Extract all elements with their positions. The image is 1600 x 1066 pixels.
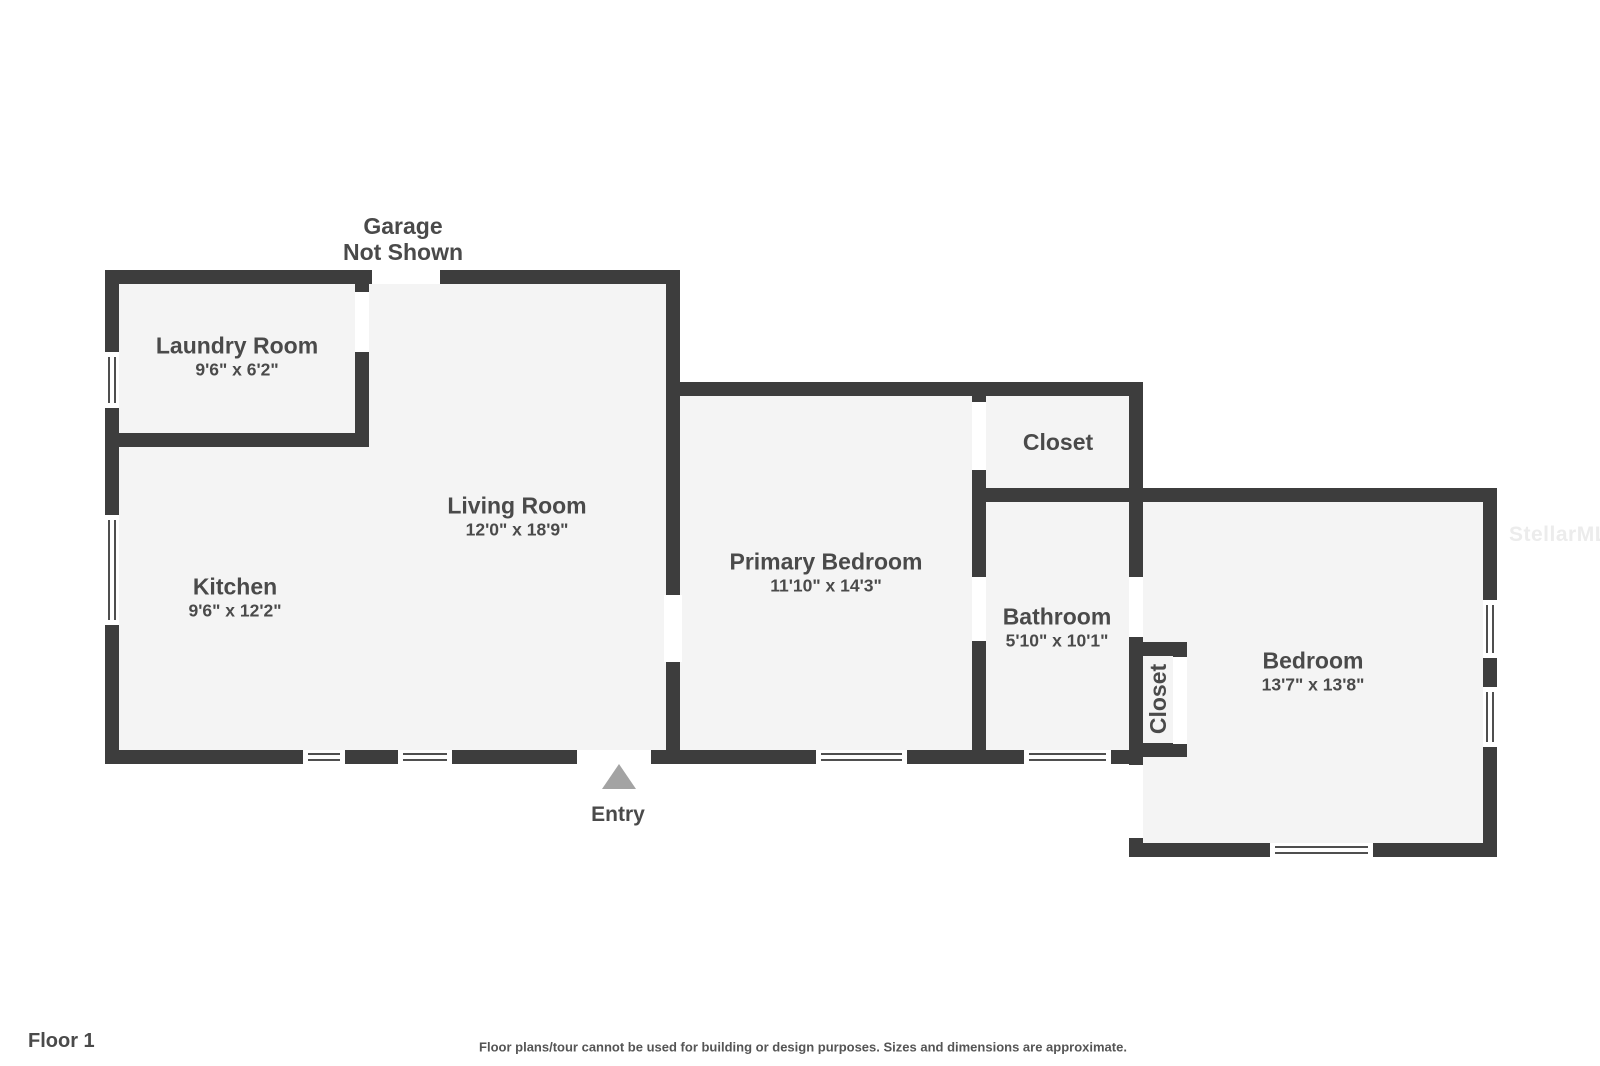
garage-note-line2: Not Shown — [343, 239, 463, 265]
floor-plan-page: Laundry Room 9'6" x 6'2" Kitchen 9'6" x … — [0, 0, 1600, 1066]
window-laundry-left — [105, 352, 119, 408]
room-dims: 9'6" x 6'2" — [156, 359, 318, 382]
room-dims: 9'6" x 12'2" — [188, 600, 281, 623]
room-dims: 13'7" x 13'8" — [1262, 674, 1365, 697]
room-label-primary-bedroom: Primary Bedroom 11'10" x 14'3" — [729, 549, 922, 598]
room-name: Laundry Room — [156, 333, 318, 359]
window-primary-bottom — [816, 750, 907, 764]
disclaimer-text: Floor plans/tour cannot be used for buil… — [479, 1040, 1127, 1055]
room-label-closet: Closet — [1023, 429, 1093, 455]
window-bedroom-bottom — [1270, 843, 1373, 857]
entry-label: Entry — [591, 803, 645, 827]
room-name: Closet — [1145, 664, 1171, 734]
window-bedroom-right-1 — [1483, 600, 1497, 658]
wall-closet-bottom — [972, 488, 1143, 502]
door-opening-bathroom-right — [1129, 577, 1143, 637]
room-label-laundry-room: Laundry Room 9'6" x 6'2" — [156, 333, 318, 382]
watermark-stellar-mls: StellarMLS — [1509, 523, 1600, 547]
wall-primary-top — [666, 382, 1143, 396]
room-dims: 5'10" x 10'1" — [1003, 630, 1112, 653]
room-name: Living Room — [447, 493, 586, 519]
room-name: Bathroom — [1003, 604, 1112, 630]
room-label-living-room: Living Room 12'0" x 18'9" — [447, 493, 586, 542]
wall-living-room-right — [666, 270, 680, 764]
wall-laundry-bottom — [105, 433, 369, 447]
door-opening-bedroom-side — [1129, 765, 1143, 838]
room-name: Closet — [1023, 429, 1093, 455]
door-opening-bedroom-closet — [1173, 657, 1187, 744]
garage-note-line1: Garage — [343, 213, 463, 239]
wall-bedroom-right — [1483, 488, 1497, 857]
door-opening-bathroom-left — [972, 577, 986, 641]
floor-label: Floor 1 — [28, 1030, 95, 1053]
door-opening-laundry — [355, 292, 369, 352]
window-bathroom-bottom — [1024, 750, 1111, 764]
door-opening-primary-bedroom — [664, 595, 682, 662]
window-kitchen-bottom-2 — [398, 750, 452, 764]
room-name: Kitchen — [188, 574, 281, 600]
entry-arrow-icon — [602, 764, 636, 789]
wall-bedroom-top — [1129, 488, 1497, 502]
wall-bedroom-closet-bottom — [1129, 743, 1187, 757]
room-label-kitchen: Kitchen 9'6" x 12'2" — [188, 574, 281, 623]
room-name: Primary Bedroom — [729, 549, 922, 575]
window-bedroom-right-2 — [1483, 687, 1497, 747]
window-kitchen-bottom-1 — [303, 750, 345, 764]
door-opening-entry — [577, 750, 651, 764]
room-name: Bedroom — [1262, 648, 1365, 674]
room-label-bedroom-closet: Closet — [1145, 664, 1171, 734]
garage-note: Garage Not Shown — [343, 213, 463, 265]
room-dims: 12'0" x 18'9" — [447, 519, 586, 542]
room-label-bedroom: Bedroom 13'7" x 13'8" — [1262, 648, 1365, 697]
door-opening-closet — [972, 402, 986, 470]
door-opening-garage — [372, 270, 440, 284]
window-kitchen-left — [105, 515, 119, 625]
room-dims: 11'10" x 14'3" — [729, 575, 922, 598]
room-label-bathroom: Bathroom 5'10" x 10'1" — [1003, 604, 1112, 653]
